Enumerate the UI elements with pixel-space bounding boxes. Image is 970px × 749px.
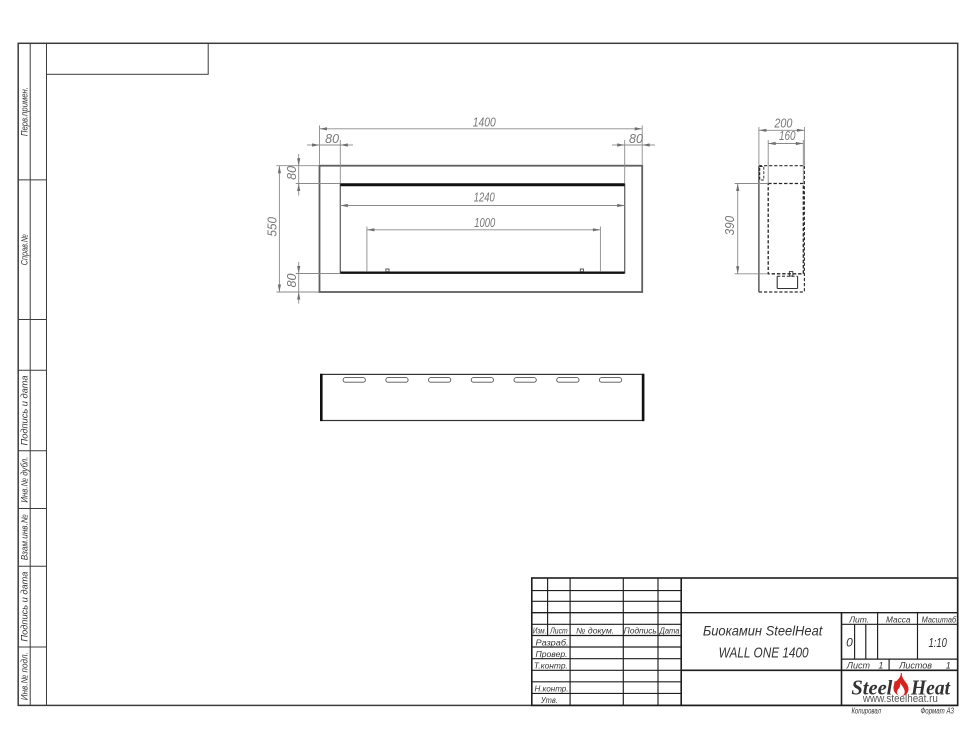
svg-text:Дата: Дата (659, 627, 680, 636)
svg-text:1:10: 1:10 (929, 635, 948, 650)
svg-text:Т.контр.: Т.контр. (534, 662, 568, 671)
svg-text:Перв.примен.: Перв.примен. (20, 87, 30, 136)
svg-text:160: 160 (779, 129, 796, 143)
svg-text:Лист: Лист (846, 661, 871, 671)
svg-text:Подпись: Подпись (624, 627, 657, 636)
svg-text:Провер.: Провер. (536, 650, 568, 659)
svg-text:Листов: Листов (898, 661, 932, 671)
svg-text:550: 550 (265, 217, 279, 237)
svg-text:80: 80 (325, 132, 339, 146)
svg-text:Подпись и дата: Подпись и дата (20, 376, 30, 446)
svg-text:1: 1 (878, 661, 883, 671)
svg-text:Масса: Масса (886, 614, 911, 624)
svg-text:Масштаб: Масштаб (922, 614, 958, 624)
svg-text:1: 1 (946, 661, 951, 671)
svg-text:Инв.№ дубл.: Инв.№ дубл. (20, 457, 30, 503)
svg-text:Взам.инв.№: Взам.инв.№ (20, 514, 30, 560)
svg-text:1400: 1400 (473, 115, 496, 129)
svg-text:Подпись и дата: Подпись и дата (20, 572, 30, 642)
svg-text:Инв.№ подл.: Инв.№ подл. (20, 652, 30, 700)
svg-text:№ докум.: № докум. (576, 627, 614, 636)
svg-text:Изм.: Изм. (533, 627, 547, 636)
svg-text:0: 0 (846, 636, 853, 650)
svg-text:Лит.: Лит. (848, 614, 869, 624)
svg-text:80: 80 (285, 166, 299, 180)
svg-text:Справ.№: Справ.№ (20, 234, 30, 265)
svg-text:1000: 1000 (474, 216, 495, 230)
svg-text:Биокамин SteelHeat: Биокамин SteelHeat (703, 622, 824, 638)
svg-text:www.steelheat.ru: www.steelheat.ru (862, 693, 938, 705)
svg-text:80: 80 (285, 274, 299, 288)
svg-text:390: 390 (723, 216, 737, 236)
svg-text:1240: 1240 (474, 190, 495, 204)
svg-text:Н.контр.: Н.контр. (535, 685, 569, 694)
svg-text:Формат А3: Формат А3 (920, 706, 954, 715)
svg-text:Утв.: Утв. (540, 696, 558, 705)
svg-text:Лист: Лист (549, 627, 567, 636)
svg-text:80: 80 (629, 132, 643, 146)
svg-text:WALL ONE 1400: WALL ONE 1400 (719, 644, 810, 661)
svg-text:Разраб.: Разраб. (536, 638, 569, 647)
svg-text:Копировал: Копировал (851, 706, 881, 715)
